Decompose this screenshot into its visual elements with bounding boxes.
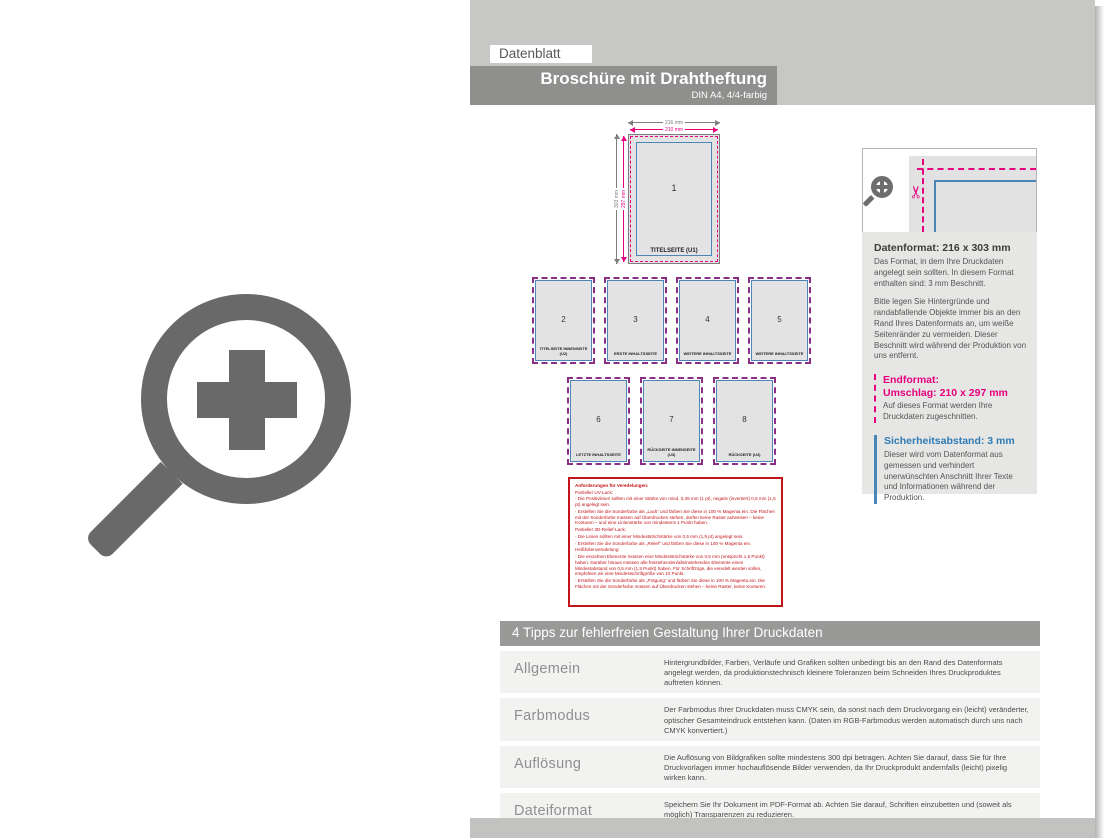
page-title: Broschüre mit Drahtheftung bbox=[470, 69, 767, 89]
bleed-corner-preview-box: ✂ bbox=[862, 148, 1037, 238]
tip-text: Die Auflösung von Bildgrafiken sollte mi… bbox=[664, 751, 1030, 783]
page-area: 8 RÜCKSEITE (U4) bbox=[716, 380, 773, 462]
zoom-icon-handle bbox=[862, 195, 874, 207]
dim-label: 297 mm bbox=[621, 188, 627, 210]
page-thumbnail: 4 WEITERE INHALTSSEITE bbox=[676, 277, 739, 364]
page-subtitle: DIN A4, 4/4-farbig bbox=[470, 90, 767, 101]
page-number: 4 bbox=[680, 315, 735, 324]
page-label: RÜCKSEITE INNENSEITE (U3) bbox=[644, 447, 699, 457]
tip-text: Hintergrundbilder, Farben, Verläufe und … bbox=[664, 656, 1030, 688]
page-diagram-cover: 1 TITELSEITE (U1) bbox=[628, 134, 720, 264]
dim-label: 216 mm bbox=[663, 120, 685, 126]
dim-label: 210 mm bbox=[663, 127, 685, 133]
sicherheitsabstand-section: Sicherheitsabstand: 3 mm Dieser wird vom… bbox=[874, 435, 1027, 504]
tip-label: Farbmodus bbox=[514, 703, 664, 735]
requirements-line: Partieller UV-Lack: bbox=[575, 490, 776, 496]
safety-line bbox=[636, 142, 712, 256]
zoom-icon-plus bbox=[880, 181, 884, 193]
dim-arrow-height-endformat: 297 mm bbox=[623, 136, 624, 262]
page-label: RÜCKSEITE (U4) bbox=[717, 452, 772, 457]
page-thumbnail: 6 LETZTE INHALTSSEITE bbox=[567, 377, 630, 465]
bleed-line bbox=[917, 168, 1036, 170]
page-label: TITELSEITE (U1) bbox=[629, 248, 719, 254]
page-area: 6 LETZTE INHALTSSEITE bbox=[570, 380, 627, 462]
scissors-icon: ✂ bbox=[909, 185, 927, 199]
page-number: 2 bbox=[536, 315, 591, 324]
page-number: 3 bbox=[608, 315, 663, 324]
page-thumbnail: 5 WEITERE INHALTSSEITE bbox=[748, 277, 811, 364]
page-area: 2 TITELSEITE INNENSEITE (U2) bbox=[535, 280, 592, 361]
page-label: WEITERE INHALTSSEITE bbox=[752, 351, 807, 356]
dim-label: 303 mm bbox=[614, 188, 620, 210]
page-area: 7 RÜCKSEITE INNENSEITE (U3) bbox=[643, 380, 700, 462]
footer-band bbox=[470, 818, 1095, 838]
page-number: 5 bbox=[752, 315, 807, 324]
datenformat-text: Das Format, in dem Ihre Druckdaten angel… bbox=[874, 257, 1027, 289]
page-number: 6 bbox=[571, 415, 626, 424]
datenformat-title: Datenformat: 216 x 303 mm bbox=[874, 242, 1027, 254]
zoom-icon-handle bbox=[84, 462, 182, 560]
page-area: 5 WEITERE INHALTSSEITE bbox=[751, 280, 808, 361]
page-thumbnails-row-2: 6 LETZTE INHALTSSEITE 7 RÜCKSEITE INNENS… bbox=[567, 377, 776, 465]
page-thumbnail: 8 RÜCKSEITE (U4) bbox=[713, 377, 776, 465]
page-number: 8 bbox=[717, 415, 772, 424]
tip-row-farbmodus: Farbmodus Der Farbmodus Ihrer Druckdaten… bbox=[500, 698, 1040, 740]
page-area: 4 WEITERE INHALTSSEITE bbox=[679, 280, 736, 361]
bleed-corner-preview: ✂ bbox=[909, 156, 1036, 232]
requirements-line: · Erstellen Sie die Sonderfarbe als „Rel… bbox=[575, 541, 776, 547]
datasheet-page: Datenblatt Broschüre mit Drahtheftung DI… bbox=[470, 0, 1095, 838]
page-number: 1 bbox=[629, 183, 719, 193]
datenformat-text: Bitte legen Sie Hintergründe und randabf… bbox=[874, 297, 1027, 362]
page-shadow bbox=[1095, 6, 1104, 838]
tips-header-bar: 4 Tipps zur fehlerfreien Gestaltung Ihre… bbox=[500, 621, 1040, 646]
datenformat-section: Datenformat: 216 x 303 mm Das Format, in… bbox=[874, 242, 1027, 362]
sicherheitsabstand-text: Dieser wird vom Datenformat aus gemessen… bbox=[884, 450, 1027, 504]
page-label: TITELSEITE INNENSEITE (U2) bbox=[536, 346, 591, 356]
dim-arrow-width-endformat: 210 mm bbox=[630, 129, 718, 130]
safety-line bbox=[934, 180, 936, 232]
title-band: Broschüre mit Drahtheftung DIN A4, 4/4-f… bbox=[470, 66, 777, 105]
page-thumbnail: 7 RÜCKSEITE INNENSEITE (U3) bbox=[640, 377, 703, 465]
tip-row-aufloesung: Auflösung Die Auflösung von Bildgrafiken… bbox=[500, 746, 1040, 788]
page-label: WEITERE INHALTSSEITE bbox=[680, 351, 735, 356]
requirements-line: · Erstellen Sie die Sonderfarbe als „Lac… bbox=[575, 509, 776, 526]
endformat-text: Auf dieses Format werden Ihre Druckdaten… bbox=[883, 401, 1027, 423]
datasheet-preview: Datenblatt Broschüre mit Drahtheftung DI… bbox=[0, 0, 1117, 838]
page-thumbnails-row-1: 2 TITELSEITE INNENSEITE (U2) 3 ERSTE INH… bbox=[532, 277, 811, 364]
requirements-line: · Erstellen Sie die Sonderfarbe als „Prä… bbox=[575, 578, 776, 589]
sicherheitsabstand-title: Sicherheitsabstand: 3 mm bbox=[884, 435, 1027, 447]
endformat-value: Umschlag: 210 x 297 mm bbox=[883, 387, 1027, 400]
requirements-line: · Die Positivlinien sollten mit einer St… bbox=[575, 496, 776, 507]
tip-text: Der Farbmodus Ihrer Druckdaten muss CMYK… bbox=[664, 703, 1030, 735]
requirements-line: · Die einzelnen Elemente müssen eine Min… bbox=[575, 554, 776, 577]
requirements-title: Anforderungen für Veredelungen: bbox=[575, 483, 776, 489]
dim-arrow-height-datenformat: 303 mm bbox=[616, 134, 617, 264]
page-area: 3 ERSTE INHALTSSEITE bbox=[607, 280, 664, 361]
requirements-line: Partieller 3D-Relief-Lack: bbox=[575, 527, 776, 533]
page-thumbnail: 2 TITELSEITE INNENSEITE (U2) bbox=[532, 277, 595, 364]
safety-line bbox=[934, 180, 1036, 182]
page-thumbnail: 3 ERSTE INHALTSSEITE bbox=[604, 277, 667, 364]
zoom-icon-plus bbox=[229, 350, 265, 450]
dim-arrow-width-datenformat: 216 mm bbox=[628, 122, 720, 123]
page-label: LETZTE INHALTSSEITE bbox=[571, 452, 626, 457]
tip-row-allgemein: Allgemein Hintergrundbilder, Farben, Ver… bbox=[500, 651, 1040, 693]
endformat-title: Endformat: bbox=[883, 374, 1027, 387]
tip-label: Allgemein bbox=[514, 656, 664, 688]
tips-section: 4 Tipps zur fehlerfreien Gestaltung Ihre… bbox=[500, 621, 1040, 825]
finishing-requirements-box: Anforderungen für Veredelungen: Partiell… bbox=[568, 477, 783, 607]
tip-label: Auflösung bbox=[514, 751, 664, 783]
requirements-line: Heißfolienveredelung: bbox=[575, 547, 776, 553]
format-info-panel: Datenformat: 216 x 303 mm Das Format, in… bbox=[862, 232, 1037, 494]
page-number: 7 bbox=[644, 415, 699, 424]
endformat-section: Endformat: Umschlag: 210 x 297 mm Auf di… bbox=[874, 374, 1027, 423]
datenblatt-tab: Datenblatt bbox=[490, 45, 592, 63]
requirements-line: · Die Linien sollten mit einer Mindestst… bbox=[575, 534, 776, 540]
page-label: ERSTE INHALTSSEITE bbox=[608, 351, 663, 356]
